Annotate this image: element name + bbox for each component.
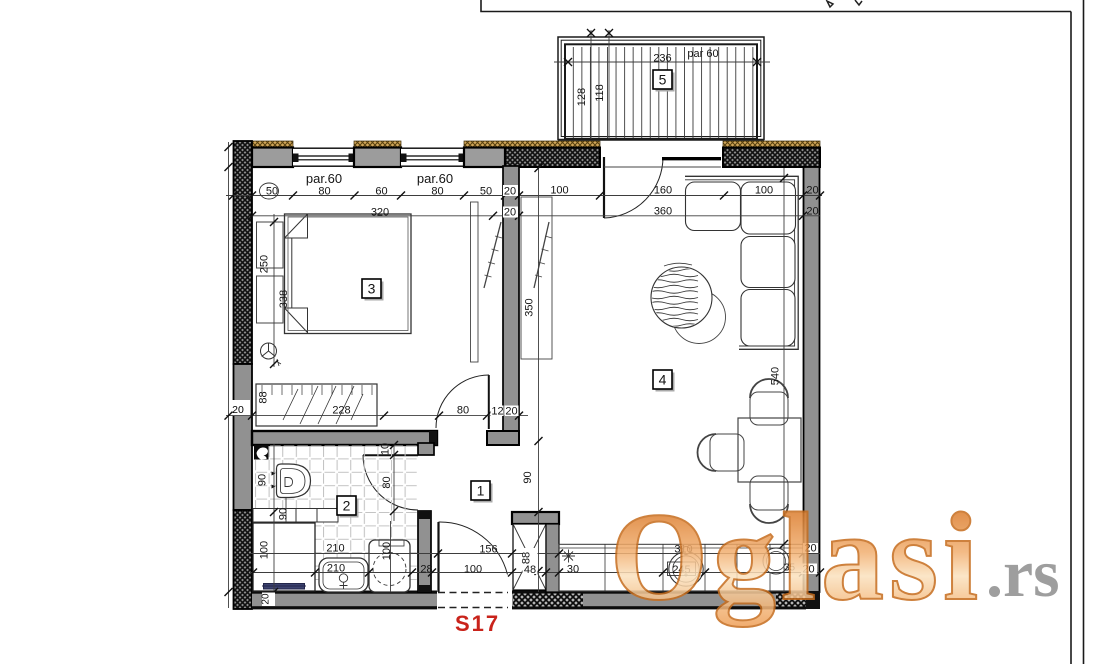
svg-text:48: 48 (524, 564, 536, 576)
svg-text:128: 128 (576, 88, 588, 106)
svg-text:1: 1 (477, 483, 485, 499)
svg-text:par.60: par.60 (417, 171, 453, 186)
svg-text:228: 228 (332, 405, 350, 417)
svg-text:360: 360 (654, 206, 672, 218)
svg-text:156: 156 (479, 544, 497, 556)
svg-text:4: 4 (659, 372, 667, 388)
svg-text:210: 210 (326, 543, 344, 555)
svg-text:S17: S17 (455, 611, 500, 636)
svg-text:100: 100 (381, 542, 393, 560)
svg-text:210: 210 (327, 563, 345, 575)
svg-text:20: 20 (806, 185, 818, 197)
svg-text:100: 100 (755, 185, 773, 197)
svg-text:338: 338 (278, 290, 290, 308)
svg-text:20: 20 (505, 406, 517, 418)
svg-text:118: 118 (594, 84, 606, 102)
svg-text:5: 5 (659, 72, 667, 88)
svg-text:20: 20 (504, 207, 516, 219)
svg-text:60: 60 (375, 186, 387, 198)
svg-text:90: 90 (522, 471, 534, 483)
svg-text:540: 540 (770, 367, 782, 385)
svg-text:80: 80 (381, 476, 393, 488)
svg-text:350: 350 (524, 298, 536, 316)
svg-text:20: 20 (261, 593, 272, 605)
svg-text:80: 80 (431, 186, 443, 198)
svg-text:320: 320 (371, 207, 389, 219)
svg-text:30: 30 (567, 564, 579, 576)
svg-text:250: 250 (259, 255, 271, 273)
svg-text:par 60: par 60 (687, 48, 718, 60)
svg-text:.rs: .rs (986, 535, 1060, 611)
svg-text:28: 28 (420, 564, 432, 576)
svg-text:50: 50 (480, 186, 492, 198)
svg-text:236: 236 (653, 53, 671, 65)
svg-text:80: 80 (457, 405, 469, 417)
svg-text:20: 20 (504, 186, 516, 198)
svg-text:90: 90 (257, 474, 269, 486)
svg-text:80: 80 (318, 186, 330, 198)
svg-text:Oglasi: Oglasi (610, 488, 983, 627)
svg-text:20: 20 (806, 206, 818, 218)
svg-text:100: 100 (259, 541, 271, 559)
svg-text:par.60: par.60 (306, 171, 342, 186)
svg-text:88: 88 (258, 391, 270, 403)
svg-text:100: 100 (464, 564, 482, 576)
svg-text:10: 10 (380, 443, 392, 455)
svg-text:90: 90 (278, 508, 290, 520)
svg-text:2: 2 (343, 498, 351, 514)
svg-text:12: 12 (491, 406, 503, 418)
svg-text:160: 160 (654, 185, 672, 197)
svg-text:20: 20 (232, 404, 244, 416)
svg-text:3: 3 (368, 281, 376, 297)
svg-text:88: 88 (521, 552, 533, 564)
svg-text:100: 100 (550, 185, 568, 197)
